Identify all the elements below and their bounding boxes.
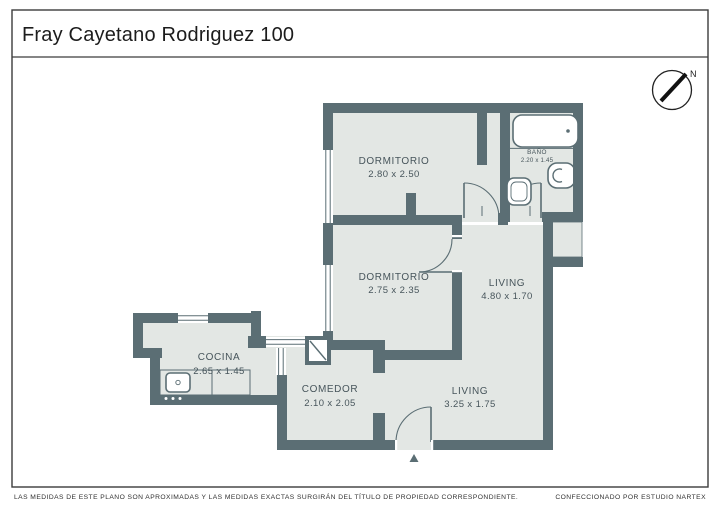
svg-text:DORMITORIO: DORMITORIO <box>359 156 430 167</box>
svg-text:2.80 x 2.50: 2.80 x 2.50 <box>368 169 419 180</box>
window-dorm2 <box>323 265 333 331</box>
footer-credit: CONFECCIONADO POR ESTUDIO NARTEX <box>555 494 706 501</box>
window-recess <box>552 222 582 257</box>
window-comedor-vertical <box>276 348 286 375</box>
svg-text:LIVING: LIVING <box>452 386 488 397</box>
svg-text:DORMITORIO: DORMITORIO <box>359 272 430 283</box>
svg-text:2.10 x 2.05: 2.10 x 2.05 <box>304 398 355 409</box>
svg-text:4.80 x 1.70: 4.80 x 1.70 <box>481 291 532 302</box>
svg-text:BAÑO: BAÑO <box>527 147 547 156</box>
svg-text:2.20 x 1.45: 2.20 x 1.45 <box>521 157 554 164</box>
svg-text:2.75 x 2.35: 2.75 x 2.35 <box>368 285 419 296</box>
stove-burners-icon <box>164 397 182 401</box>
floor-plan-canvas: Fray Cayetano Rodriguez 100 N <box>0 0 720 509</box>
footer-disclaimer: LAS MEDIDAS DE ESTE PLANO SON APROXIMADA… <box>14 492 518 501</box>
kitchen-sink-icon <box>166 373 190 392</box>
window-dorm1 <box>323 150 333 223</box>
duct-box-icon <box>309 340 327 361</box>
svg-text:COMEDOR: COMEDOR <box>302 384 358 395</box>
floor-plan-page: Fray Cayetano Rodriguez 100 N <box>0 0 720 509</box>
window-comedor-horizontal <box>266 337 305 347</box>
entrance-arrow <box>410 454 419 462</box>
compass-label: N <box>690 69 697 79</box>
svg-text:3.25 x 1.75: 3.25 x 1.75 <box>444 399 495 410</box>
window-cocina <box>178 313 208 323</box>
sink-icon <box>505 178 531 205</box>
bathtub-icon <box>508 115 583 148</box>
footer: LAS MEDIDAS DE ESTE PLANO SON APROXIMADA… <box>14 492 706 501</box>
svg-text:LIVING: LIVING <box>489 278 525 289</box>
svg-text:2.65 x 1.45: 2.65 x 1.45 <box>193 366 244 377</box>
page-title: Fray Cayetano Rodriguez 100 <box>22 24 294 46</box>
north-arrow-icon: N <box>653 69 697 110</box>
svg-text:COCINA: COCINA <box>198 352 241 363</box>
